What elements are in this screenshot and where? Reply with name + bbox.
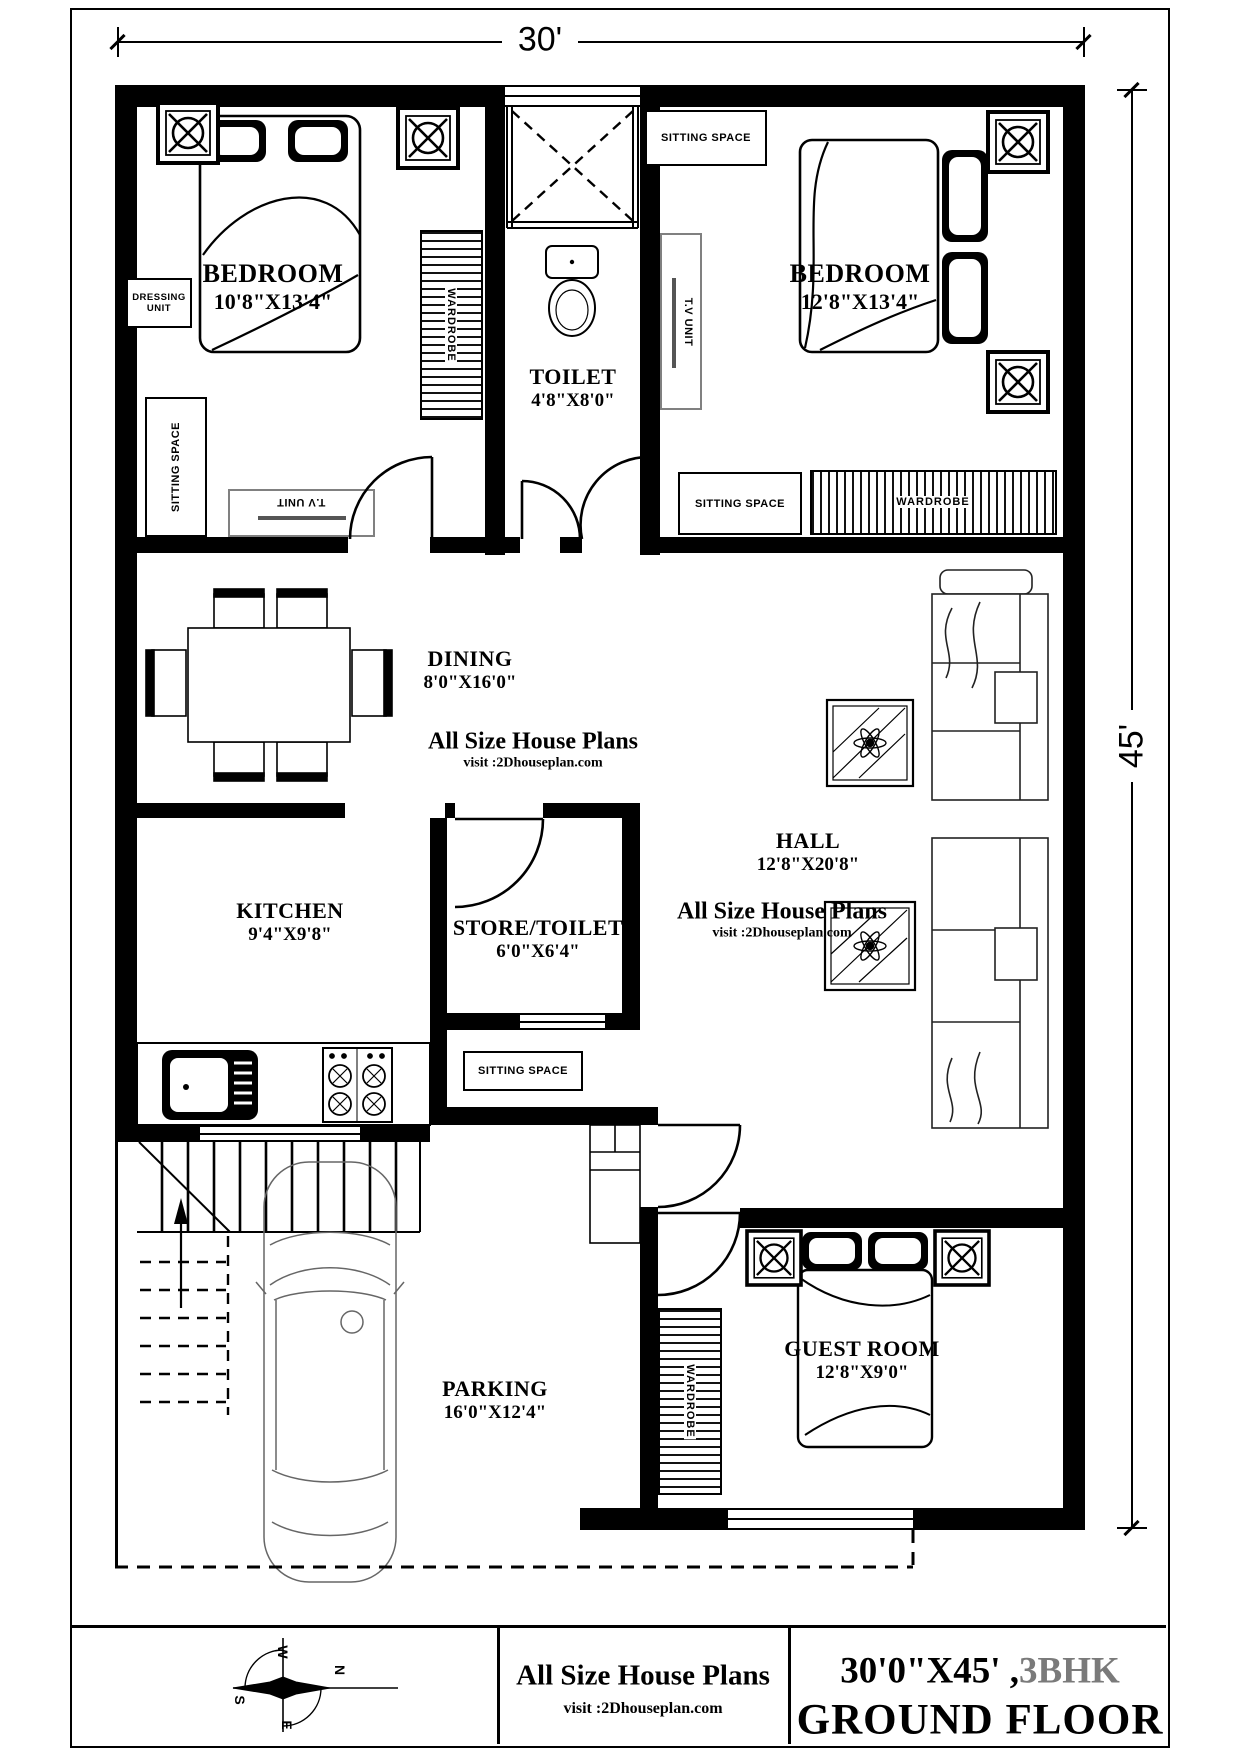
sitting-space-store: SITTING SPACE [463, 1051, 583, 1091]
tv-unit-label: T.V UNIT [277, 496, 326, 508]
plot-size-title: 30'0"X45' ,3BHK [840, 1650, 1120, 1693]
sitting-space-label: SITTING SPACE [661, 132, 751, 144]
room-size: 12'8"X20'8" [757, 854, 859, 876]
room-size: 10'8"X13'4" [203, 289, 344, 315]
wall-segment [640, 107, 660, 555]
tv-unit-bedroom2 [660, 233, 702, 410]
right-dimension-line [1131, 782, 1133, 1528]
room-label-bedroom1: BEDROOM 10'8"X13'4" [203, 259, 344, 315]
room-label-kitchen: KITCHEN 9'4"X9'8" [236, 898, 343, 946]
wardrobe-label: WARDROBE [684, 1362, 696, 1439]
tv-unit-screen [672, 278, 676, 368]
height-dimension-label: 45' [1113, 724, 1152, 768]
boundary-line [115, 1137, 118, 1567]
wall-segment [445, 803, 455, 818]
room-size: 8'0"X16'0" [424, 672, 517, 694]
wall-segment [430, 818, 447, 1125]
wall-segment [115, 85, 137, 1137]
room-size: 16'0"X12'4" [442, 1402, 548, 1424]
floor-plan-page: 30' 45' WARDROBE WARDROBE WARDROBE T.V U… [0, 0, 1240, 1754]
width-dimension-label: 30' [518, 21, 562, 60]
sitting-space-bedroom2-top: SITTING SPACE [645, 110, 767, 166]
wall-segment [137, 803, 345, 818]
top-dimension-line [118, 41, 502, 43]
wall-segment [640, 1213, 658, 1530]
room-name: BEDROOM [790, 259, 931, 289]
room-label-toilet: TOILET 4'8"X8'0" [530, 364, 617, 412]
watermark: All Size House Plans visit :2Dhouseplan.… [428, 729, 638, 772]
wall-segment [430, 537, 520, 553]
wall-segment [430, 1107, 658, 1125]
dressing-unit-label: DRESSING UNIT [128, 292, 190, 315]
room-size: 6'0"X6'4" [453, 941, 623, 963]
brand-subtitle: visit :2Dhouseplan.com [563, 1700, 722, 1718]
right-dimension-line [1131, 90, 1133, 710]
floor-title: GROUND FLOOR [797, 1696, 1164, 1745]
compass-w-label: W [275, 1645, 291, 1658]
title-block-border [70, 1625, 1166, 1628]
room-name: HALL [757, 828, 859, 854]
wall-segment [650, 537, 1063, 553]
room-label-guest-room: GUEST ROOM 12'8"X9'0" [784, 1336, 940, 1384]
room-label-store-toilet: STORE/TOILET 6'0"X6'4" [453, 915, 623, 963]
room-size: 12'8"X9'0" [784, 1362, 940, 1384]
window [505, 85, 640, 107]
tv-unit-screen [258, 516, 346, 520]
room-label-dining: DINING 8'0"X16'0" [424, 646, 517, 694]
wall-segment [1063, 85, 1085, 1530]
room-name: GUEST ROOM [784, 1336, 940, 1362]
top-dimension-line [578, 41, 1085, 43]
sitting-space-label: SITTING SPACE [170, 422, 182, 512]
room-size: 9'4"X9'8" [236, 924, 343, 946]
room-name: TOILET [530, 364, 617, 390]
tv-unit-label: T.V UNIT [682, 298, 694, 347]
brand-title: All Size House Plans [516, 1660, 770, 1693]
plot-size: 30'0"X45' , [840, 1651, 1019, 1692]
room-size: 12'8"X13'4" [790, 289, 931, 315]
title-block-divider [788, 1625, 791, 1744]
watermark-subtitle: visit :2Dhouseplan.com [428, 756, 638, 772]
wall-segment [622, 803, 640, 1030]
room-name: KITCHEN [236, 898, 343, 924]
compass-e-label: E [279, 1720, 295, 1729]
room-name: DINING [424, 646, 517, 672]
wall-segment [485, 107, 505, 555]
room-name: STORE/TOILET [453, 915, 623, 941]
compass-n-label: N [332, 1665, 348, 1675]
wardrobe-label: WARDROBE [894, 496, 971, 508]
wall-segment [740, 1208, 1063, 1228]
watermark-title: All Size House Plans [428, 729, 638, 756]
bhk-label: 3BHK [1019, 1651, 1120, 1692]
room-name: PARKING [442, 1376, 548, 1402]
watermark-title: All Size House Plans [677, 899, 887, 926]
room-label-hall: HALL 12'8"X20'8" [757, 828, 859, 876]
sitting-space-label: SITTING SPACE [695, 498, 785, 510]
watermark: All Size House Plans visit :2Dhouseplan.… [677, 899, 887, 942]
watermark-subtitle: visit :2Dhouseplan.com [677, 926, 887, 942]
sitting-space-bedroom2-bottom: SITTING SPACE [678, 472, 802, 535]
wardrobe-label: WARDROBE [445, 286, 457, 363]
room-label-bedroom2: BEDROOM 12'8"X13'4" [790, 259, 931, 315]
room-size: 4'8"X8'0" [530, 390, 617, 412]
window [200, 1125, 360, 1142]
wall-segment [115, 537, 348, 553]
wall-segment [560, 537, 582, 553]
room-label-parking: PARKING 16'0"X12'4" [442, 1376, 548, 1424]
title-block-divider [497, 1625, 500, 1744]
wall-segment [640, 1107, 658, 1125]
window [520, 1013, 605, 1030]
compass-s-label: S [232, 1695, 248, 1704]
dressing-unit-box: DRESSING UNIT [126, 278, 192, 328]
window [728, 1508, 913, 1530]
sitting-space-label: SITTING SPACE [478, 1065, 568, 1077]
sitting-space-bedroom1: SITTING SPACE [145, 397, 207, 537]
room-name: BEDROOM [203, 259, 344, 289]
